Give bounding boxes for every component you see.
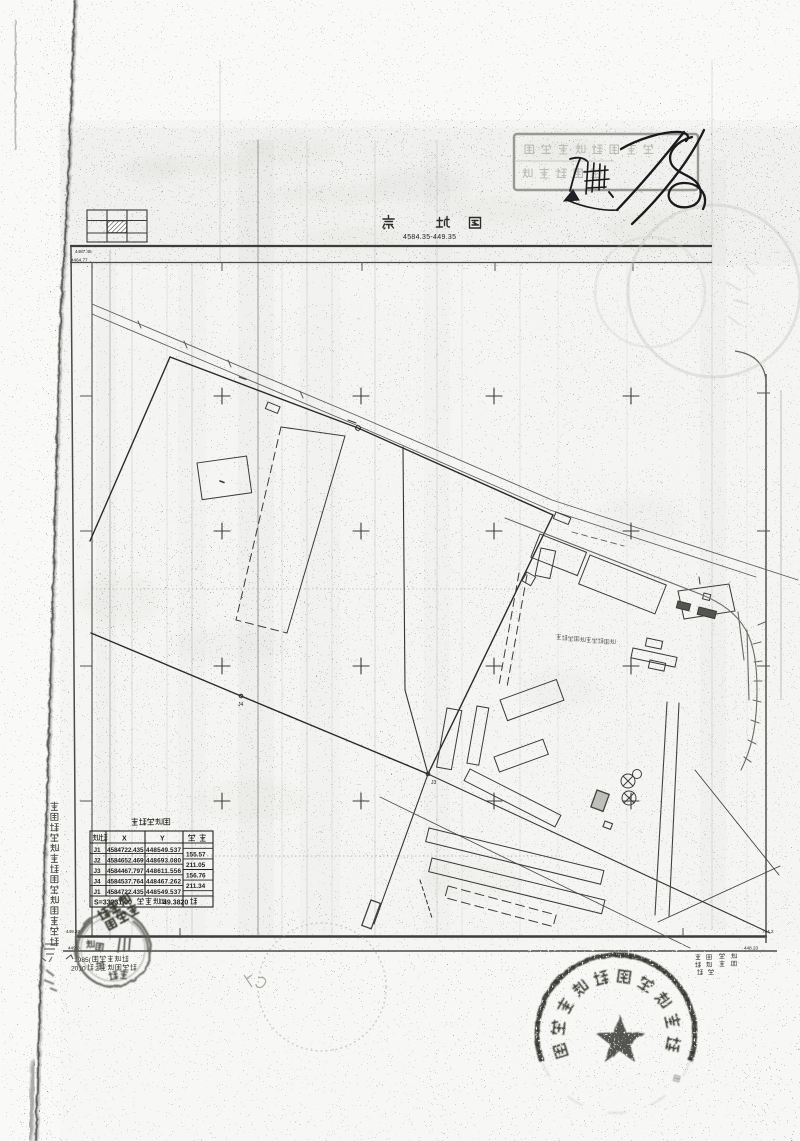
svg-text:448611.556: 448611.556 bbox=[146, 868, 181, 875]
svg-text:J3: J3 bbox=[431, 780, 437, 786]
svg-text:448467.262: 448467.262 bbox=[146, 879, 181, 886]
svg-text:J4: J4 bbox=[238, 702, 244, 708]
svg-text:J4: J4 bbox=[94, 879, 102, 886]
svg-text:448.23: 448.23 bbox=[744, 946, 758, 951]
svg-text:211.05: 211.05 bbox=[186, 862, 206, 869]
svg-text:4464.77: 4464.77 bbox=[71, 258, 88, 263]
svg-text:448549.537: 448549.537 bbox=[146, 847, 181, 854]
svg-text:4584652.469: 4584652.469 bbox=[107, 857, 144, 864]
svg-text:4584467.797: 4584467.797 bbox=[107, 868, 144, 875]
svg-text:448693.080: 448693.080 bbox=[146, 857, 181, 864]
svg-text:Y: Y bbox=[160, 836, 165, 843]
svg-text:49.3820: 49.3820 bbox=[163, 900, 188, 907]
svg-text:4584722.435: 4584722.435 bbox=[107, 889, 144, 896]
svg-text:J1: J1 bbox=[94, 889, 102, 896]
svg-text:4487.45: 4487.45 bbox=[75, 249, 92, 254]
svg-text:4584722.435: 4584722.435 bbox=[107, 847, 144, 854]
svg-text:156.76: 156.76 bbox=[186, 873, 206, 880]
svg-text:J1: J1 bbox=[94, 847, 102, 854]
svg-text:155.57: 155.57 bbox=[186, 852, 206, 859]
svg-text:J3: J3 bbox=[94, 868, 102, 875]
svg-text:448549.537: 448549.537 bbox=[146, 889, 181, 896]
svg-text:J2: J2 bbox=[94, 857, 102, 864]
svg-text:211.34: 211.34 bbox=[186, 883, 206, 890]
svg-text:4584.35-449.35: 4584.35-449.35 bbox=[403, 234, 456, 241]
svg-text:4584537.764: 4584537.764 bbox=[107, 879, 144, 886]
svg-text:X: X bbox=[122, 836, 127, 843]
